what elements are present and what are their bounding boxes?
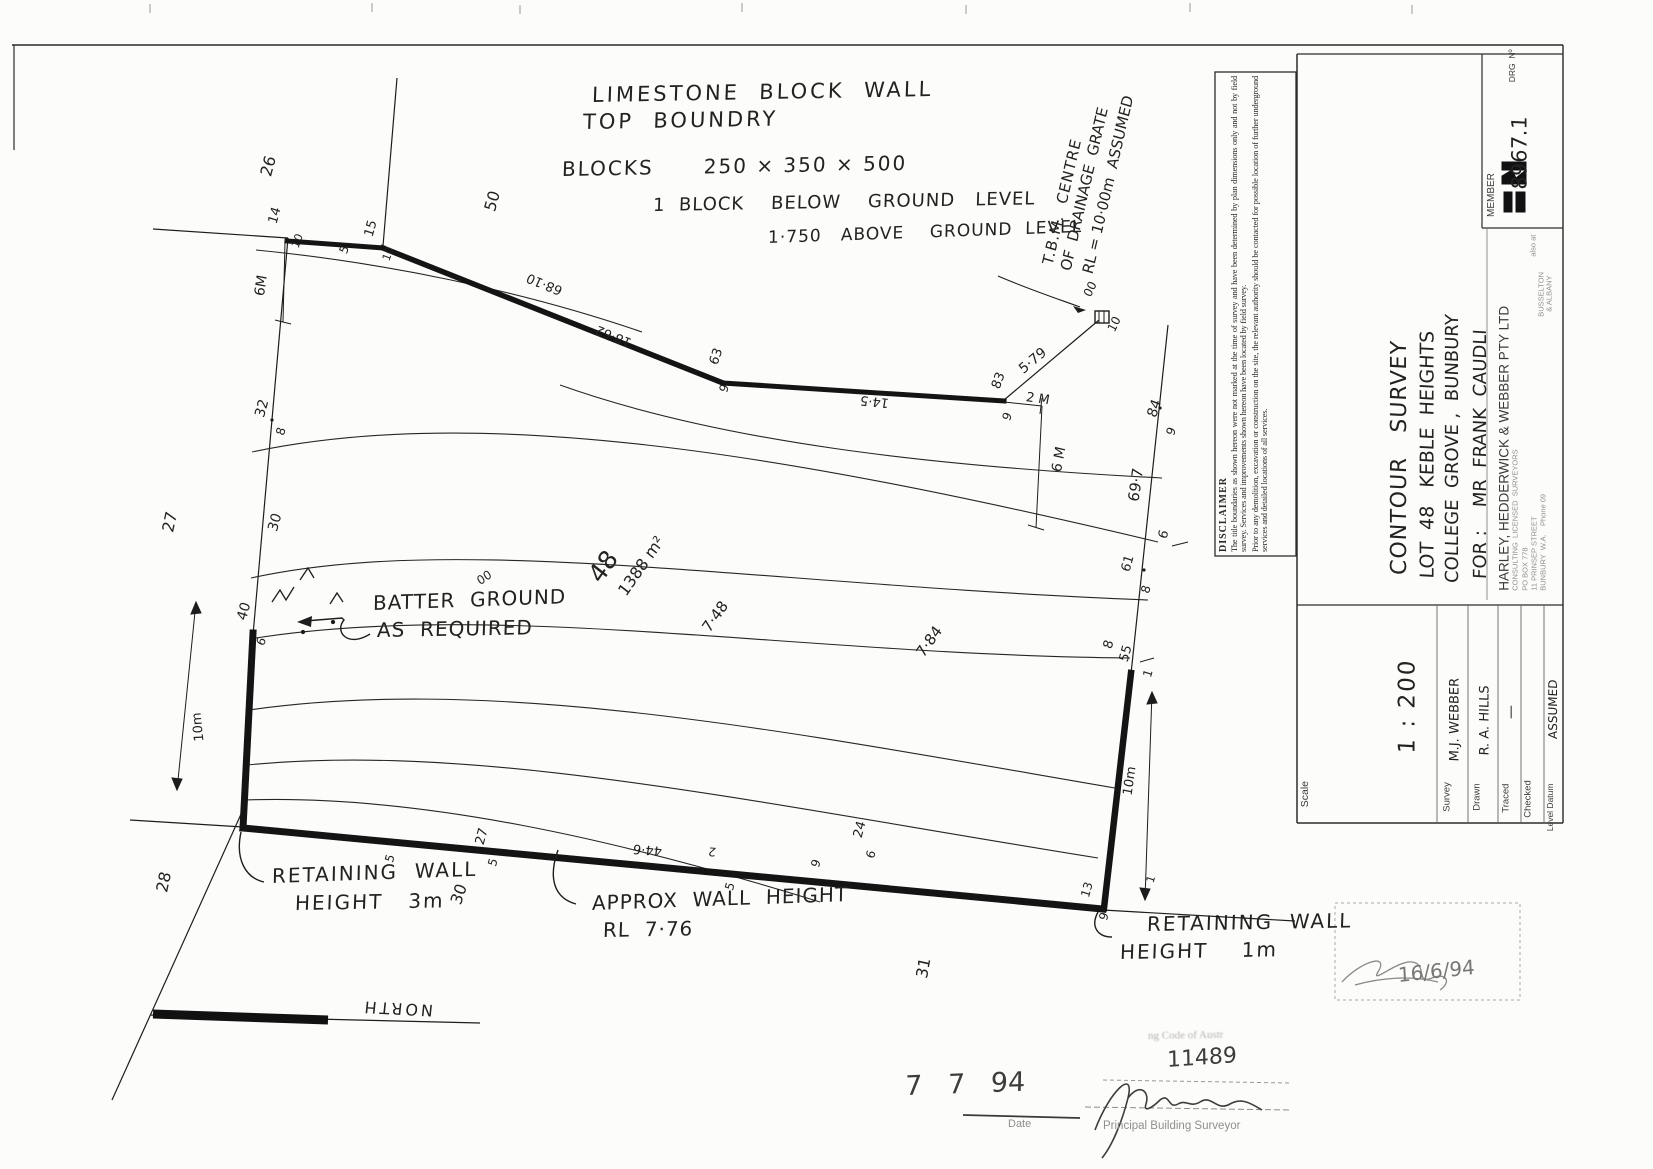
firm-subtitle: CONSULTING LICENSED SURVEYORS xyxy=(1511,449,1519,590)
lot-28: 28 xyxy=(154,870,174,894)
note-batter-2: AS REQUIRED xyxy=(377,617,534,640)
title-line-1: CONTOUR SURVEY xyxy=(1389,340,1411,576)
surveyor-label: Principal Building Surveyor xyxy=(1103,1121,1240,1133)
date-label: Date xyxy=(1008,1119,1031,1130)
drg-no-value: 8967.1 xyxy=(1510,115,1531,190)
firm-albany: & ALBANY xyxy=(1545,275,1553,311)
survey-plan-sheet: LIMESTONE BLOCK WALLTOP BOUNDRYBLOCKS 25… xyxy=(0,0,1653,1169)
north-label: NORTH xyxy=(361,998,434,1018)
stamp-fragment: ng Code of Austr xyxy=(1148,1030,1224,1042)
note-limestone-2: TOP BOUNDRY xyxy=(583,109,779,133)
note-retaining1m-1: RETAINING WALL xyxy=(1147,910,1353,934)
level-datum-value: ASSUMED xyxy=(1547,679,1559,739)
title-line-2: LOT 48 KEBLE HEIGHTS xyxy=(1419,330,1438,579)
wall-lines xyxy=(243,241,1131,909)
note-approx-2: RL 7·76 xyxy=(603,918,694,940)
drawn-value: R. A. HILLS xyxy=(1479,685,1492,756)
scale-value: 1 : 200 xyxy=(1397,658,1420,754)
note-retaining1m-2: HEIGHT 1m xyxy=(1120,939,1279,962)
pt-61: 61 xyxy=(1120,554,1137,574)
firm-city: BUNBURY W.A. Phone 09 xyxy=(1539,493,1547,590)
pt-55: 55 xyxy=(1118,644,1135,664)
checked-label: Checked xyxy=(1523,780,1533,818)
firm-street: 11 PRINSEP STREET xyxy=(1530,516,1538,590)
scan-tick-marks xyxy=(150,3,1412,14)
disclaimer-paragraph-2: Prior to any demolition, excavation or c… xyxy=(1252,76,1269,552)
dim-10m-right: 10m xyxy=(1122,765,1139,796)
disclaimer-paragraph-1: The title boundaries as shown hereon wer… xyxy=(1231,76,1248,552)
pt-15: 15 xyxy=(363,219,380,239)
member-label: MEMBER xyxy=(1487,173,1497,217)
boundary-lines xyxy=(112,78,1295,1100)
client-line: FOR : MR FRANK CAUDLI xyxy=(1472,329,1490,580)
dim-2m: 2 M xyxy=(1025,391,1051,407)
note-blocks: BLOCKS 250 × 350 × 500 xyxy=(562,153,908,179)
survey-value: M.J. WEBBER xyxy=(1449,678,1462,762)
batter-arrowhead xyxy=(297,616,312,627)
dim-69-7: 69·7 xyxy=(1127,467,1146,503)
note-batter-1: BATTER GROUND xyxy=(373,586,567,613)
dim-14-5: 14·5 xyxy=(859,393,890,409)
traced-label: Traced xyxy=(1501,783,1511,812)
drawn-label: Drawn xyxy=(1472,783,1482,810)
dimension-lines xyxy=(172,242,1188,900)
dim-44-6: 44·6 xyxy=(632,842,663,857)
pt-13: 13 xyxy=(1079,880,1094,898)
level-datum-label: Level Datum xyxy=(1546,783,1555,831)
pt-24: 24 xyxy=(852,820,869,840)
dim-6m-right: 6 M xyxy=(1050,445,1068,473)
disclaimer-text-block: DISCLAIMER The title boundaries as shown… xyxy=(1215,72,1293,556)
approval-number: 11489 xyxy=(1167,1045,1237,1072)
scale-label: Scale xyxy=(1300,780,1311,806)
dim-10m-left: 10m xyxy=(190,712,206,742)
note-retaining3m-2: HEIGHT 3m xyxy=(295,890,445,913)
lot-31: 31 xyxy=(914,956,933,980)
lot-27: 27 xyxy=(160,510,180,534)
pt-27b: 27 xyxy=(474,827,491,847)
pt-14: 14 xyxy=(267,206,284,226)
traced-value: — xyxy=(1504,705,1518,720)
dim-6m-left: 6M xyxy=(253,274,270,297)
spot-points xyxy=(270,406,1161,571)
firm-pobox: PO BOX 778 xyxy=(1521,547,1529,590)
title-line-3: COLLEGE GROVE , BUNBURY xyxy=(1444,314,1462,584)
approval-date: 7 7 94 xyxy=(905,1069,1026,1100)
survey-label: Survey xyxy=(1442,782,1452,812)
disclaimer-header: DISCLAIMER xyxy=(1218,76,1229,552)
drg-no-label: DRG Nº xyxy=(1508,49,1517,82)
contour-lines xyxy=(244,250,1162,902)
firm-name: HARLEY, HEDDERWICK & WEBBER PTY LTD xyxy=(1497,305,1511,590)
firm-also-at: also at xyxy=(1529,234,1537,256)
